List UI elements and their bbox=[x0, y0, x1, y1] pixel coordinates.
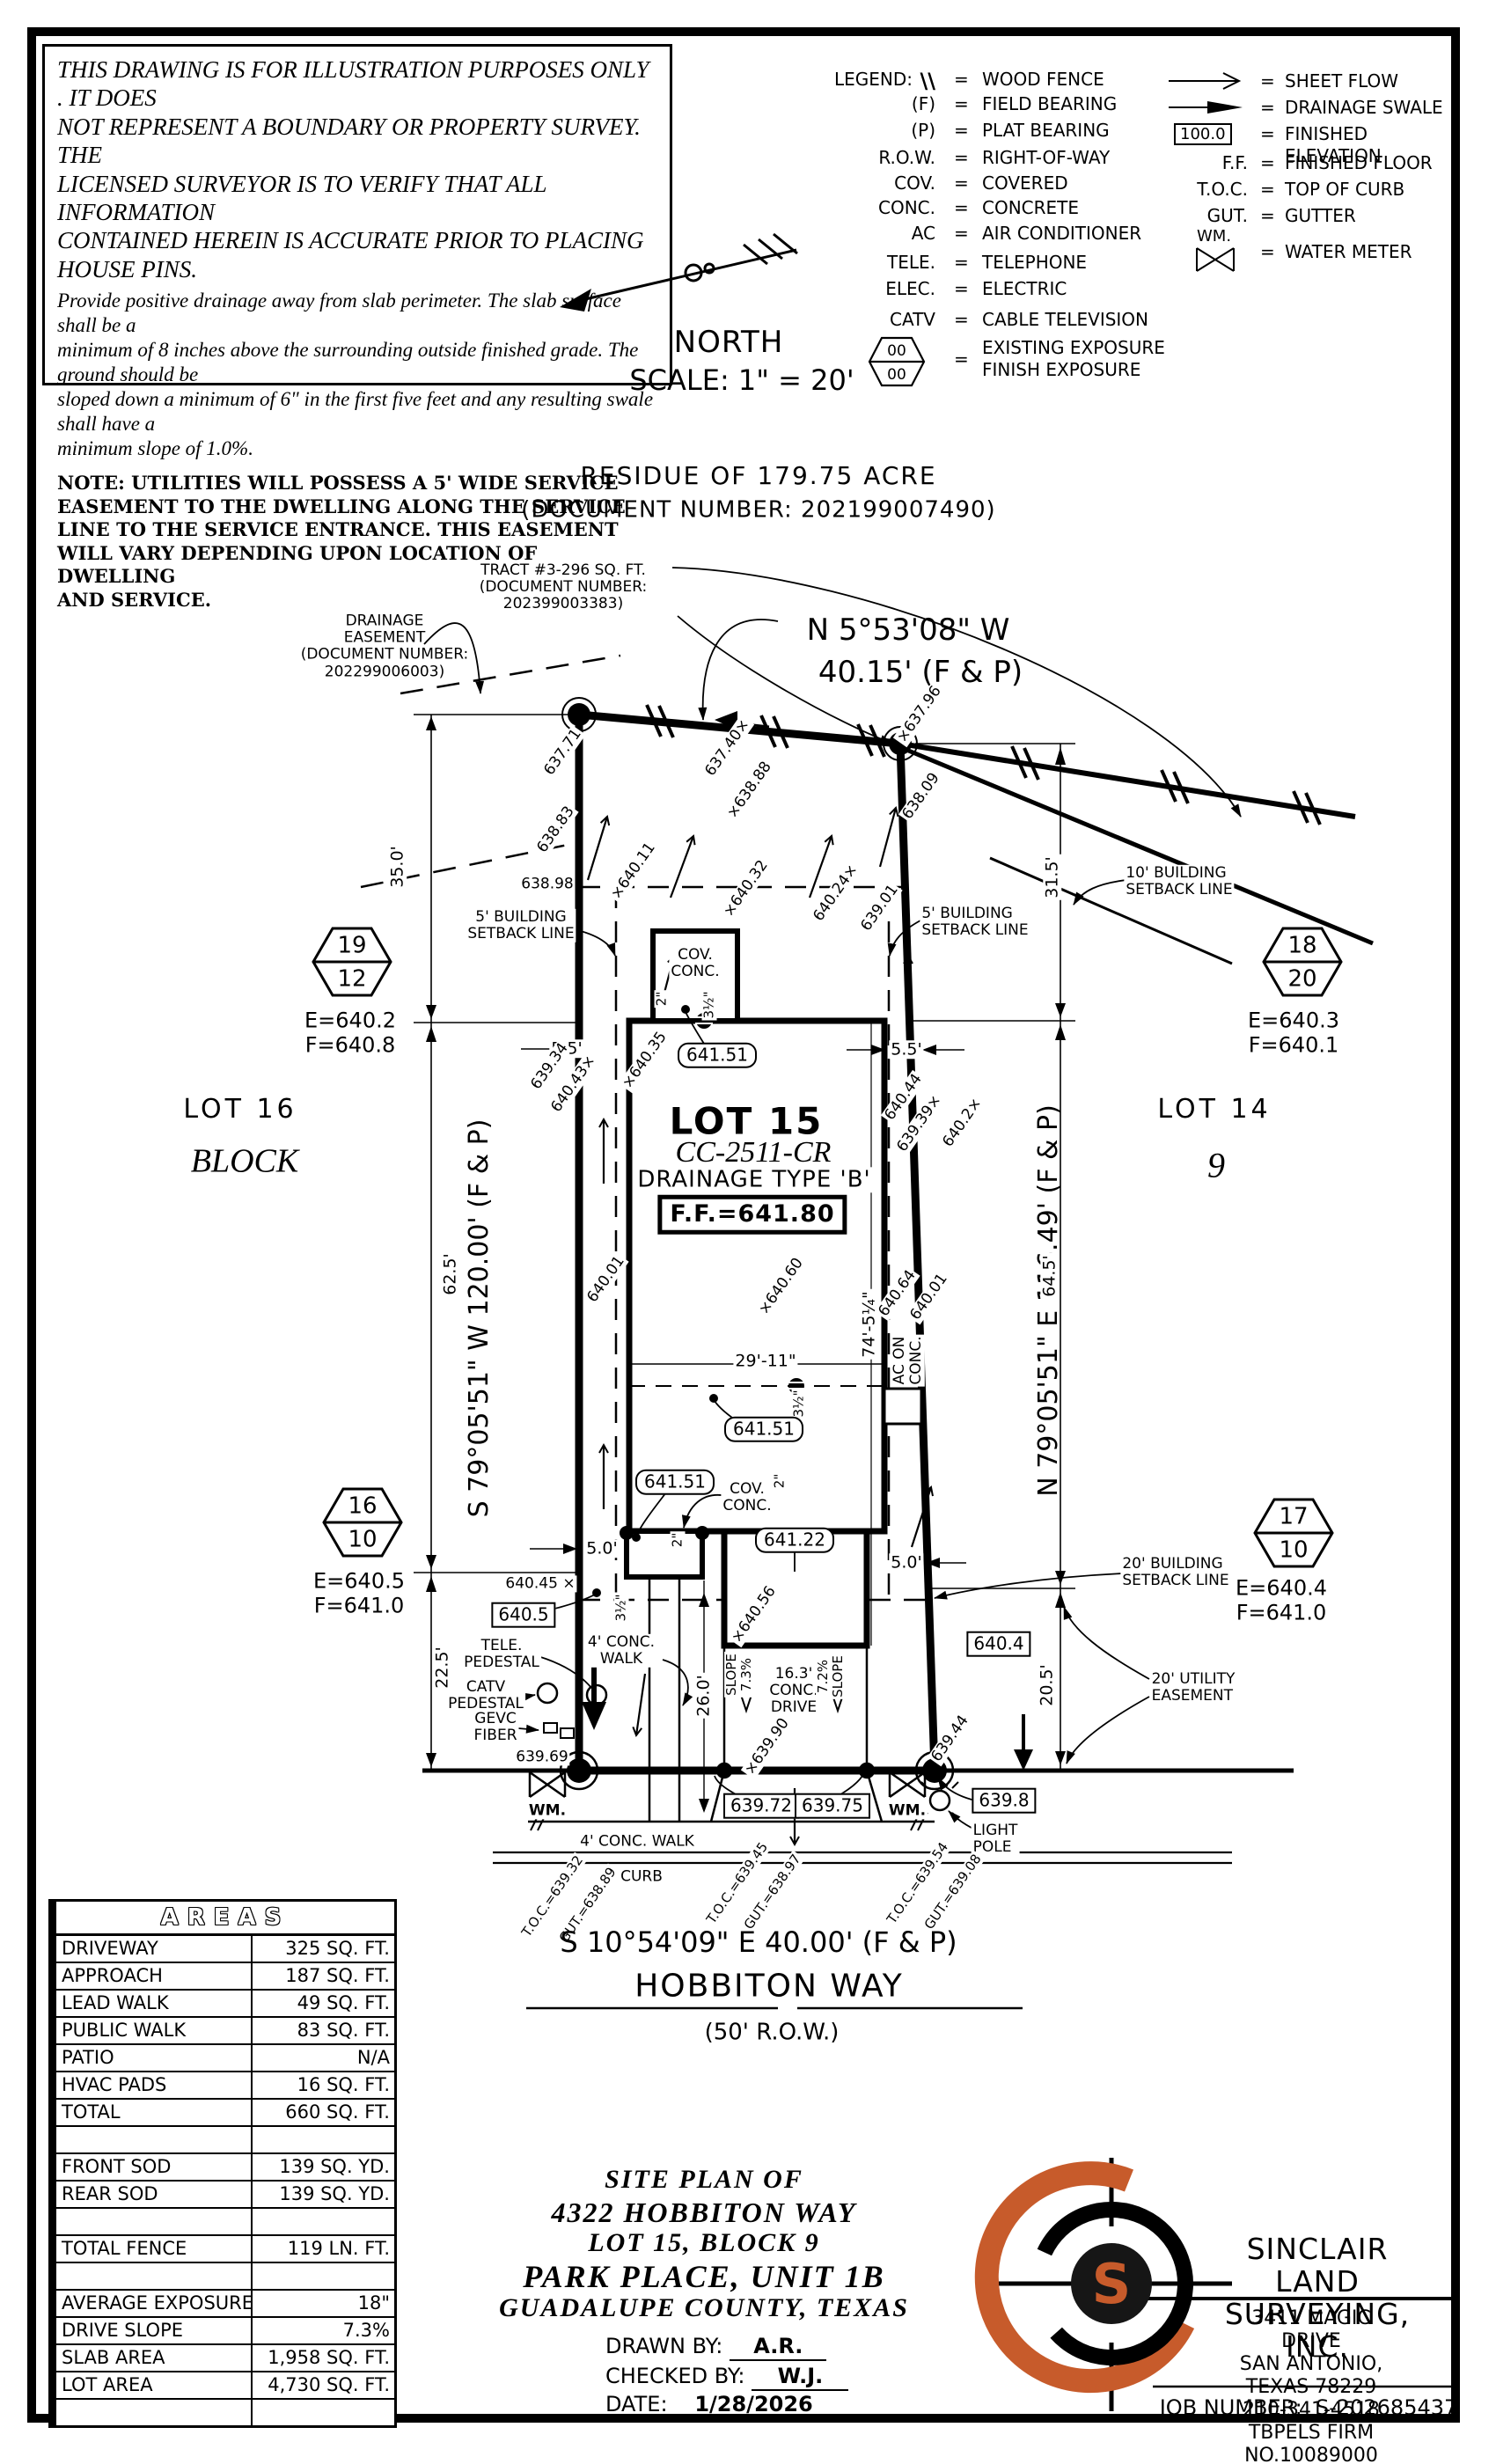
row-label: REAR SOD bbox=[56, 2182, 253, 2207]
scale-label: SCALE: 1" = 20' bbox=[627, 364, 855, 396]
row-value: N/A bbox=[253, 2045, 394, 2071]
row-value: 18" bbox=[253, 2291, 394, 2316]
equals: = bbox=[954, 252, 969, 273]
legend-row: TELE.=TELEPHONE bbox=[834, 252, 1204, 278]
row-label bbox=[56, 2209, 253, 2234]
equals: = bbox=[1260, 152, 1275, 173]
row-label: FRONT SOD bbox=[56, 2154, 253, 2180]
fiber-box-icon bbox=[544, 1723, 557, 1733]
finished-elevation-box: 639.75 bbox=[795, 1793, 870, 1819]
legend-def: TOP OF CURB bbox=[1285, 179, 1404, 201]
row-value: 4,730 SQ. FT. bbox=[253, 2372, 394, 2398]
cov-conc-patio-label: COV. CONC. bbox=[669, 947, 721, 980]
equals: = bbox=[954, 147, 969, 168]
row-label bbox=[56, 2400, 253, 2425]
legend-def: FINISHED FLOOR bbox=[1285, 152, 1433, 174]
dim-26-0: 26.0' bbox=[694, 1673, 713, 1719]
legend-row: =SHEET FLOW bbox=[1162, 70, 1470, 97]
row-label bbox=[56, 2263, 253, 2289]
finished-elevation-box: 640.5 bbox=[491, 1602, 555, 1628]
water-meter-label-right: WM. bbox=[887, 1802, 928, 1819]
checked-by-label: CHECKED BY: bbox=[605, 2364, 744, 2388]
legend-sym: WM. bbox=[1197, 227, 1231, 246]
checked-by-row: CHECKED BY:W.J. bbox=[605, 2364, 848, 2391]
dim-2in: 2" bbox=[655, 990, 670, 1008]
equals: = bbox=[954, 93, 969, 114]
exposure-bottom: 00 bbox=[887, 366, 906, 384]
table-row: TOTAL660 SQ. FT. bbox=[56, 2100, 394, 2127]
block-label: BLOCK bbox=[189, 1143, 300, 1181]
fiber-box-icon bbox=[561, 1728, 574, 1738]
bearing-west: S 79°05'51" W 120.00' (F & P) bbox=[465, 1118, 495, 1520]
table-row bbox=[56, 2127, 394, 2154]
table-row: PUBLIC WALK83 SQ. FT. bbox=[56, 2018, 394, 2045]
dim-62-5: 62.5' bbox=[441, 1251, 459, 1297]
marker-top: 19 bbox=[335, 933, 368, 958]
catv-pedestal-icon bbox=[538, 1683, 557, 1703]
utility-easement-label: 20' UTILITY EASEMENT bbox=[1150, 1671, 1237, 1705]
finished-elevation-box: 641.22 bbox=[755, 1528, 834, 1553]
row-label bbox=[56, 2127, 253, 2152]
cov-conc-stoop-label: COV. CONC. bbox=[721, 1481, 773, 1514]
drive-slope-left-label: SLOPE 7.3% bbox=[724, 1652, 754, 1698]
row-label: LEAD WALK bbox=[56, 1991, 253, 2016]
legend-def: EXISTING EXPOSURE FINISH EXPOSURE bbox=[982, 337, 1165, 381]
dim-64-5: 64.5' bbox=[1040, 1253, 1059, 1299]
drainage-swale-icon bbox=[1169, 99, 1250, 116]
water-meter-label-left: WM. bbox=[527, 1802, 568, 1819]
row-value: 7.3% bbox=[253, 2318, 394, 2343]
north-label: NORTH bbox=[672, 326, 786, 359]
equals: = bbox=[954, 223, 969, 244]
table-row: AVERAGE EXPOSURE18" bbox=[56, 2291, 394, 2318]
legend-sym: R.O.W. bbox=[878, 147, 935, 168]
row-value bbox=[253, 2263, 394, 2289]
areas-table: AREAS DRIVEWAY325 SQ. FT. APPROACH187 SQ… bbox=[48, 1899, 397, 2428]
legend-row-exposure: 00 00 = EXISTING EXPOSURE FINISH EXPOSUR… bbox=[834, 333, 1204, 394]
spot-elevation: 639.69 bbox=[514, 1749, 569, 1765]
logo-letter: S bbox=[1092, 2252, 1132, 2316]
areas-table-title: AREAS bbox=[56, 1902, 394, 1936]
conc-drive-label: 16.3' CONC. DRIVE bbox=[767, 1666, 819, 1717]
marker-existing: E=640.5 bbox=[312, 1569, 407, 1593]
legend-def: AIR CONDITIONER bbox=[982, 223, 1141, 245]
marker-bottom: 10 bbox=[346, 1527, 378, 1552]
table-row: HVAC PADS16 SQ. FT. bbox=[56, 2072, 394, 2100]
table-row: APPROACH187 SQ. FT. bbox=[56, 1963, 394, 1991]
legend-row: CONC.=CONCRETE bbox=[834, 197, 1204, 224]
table-row: SLAB AREA1,958 SQ. FT. bbox=[56, 2345, 394, 2372]
legend-title: LEGEND: bbox=[834, 69, 913, 90]
date-value: 1/28/2026 bbox=[675, 2392, 833, 2419]
legend-sym: TELE. bbox=[887, 252, 935, 273]
legend-sym: (F) bbox=[912, 93, 935, 114]
gevc-fiber-label: GEVC FIBER bbox=[472, 1711, 518, 1744]
job-number-row: JOB NUMBER: S-202685437 bbox=[1160, 2395, 1458, 2420]
bearing-north-line1: N 5°53'08" W bbox=[805, 613, 1012, 647]
row-label: TOTAL FENCE bbox=[56, 2236, 253, 2262]
legend-def: TELEPHONE bbox=[982, 252, 1087, 274]
bearing-north-line2: 40.15' (F & P) bbox=[817, 656, 1024, 689]
marker-finish: F=640.8 bbox=[304, 1033, 398, 1057]
legend-sym: T.O.C. bbox=[1197, 179, 1248, 200]
legend-def: COVERED bbox=[982, 172, 1068, 194]
marker-bottom: 20 bbox=[1286, 966, 1318, 992]
light-pole-label: LIGHT POLE bbox=[972, 1822, 1020, 1856]
equals: = bbox=[1260, 70, 1275, 92]
exposure-hex-icon: 00 00 bbox=[862, 333, 931, 391]
ac-pad bbox=[884, 1389, 921, 1424]
table-row bbox=[56, 2209, 394, 2236]
lot14-label: LOT 14 bbox=[1155, 1095, 1272, 1125]
dim-2in: 2" bbox=[773, 1472, 788, 1490]
equals: = bbox=[954, 69, 969, 90]
setback-20-label: 20' BUILDING SETBACK LINE bbox=[1120, 1556, 1230, 1589]
table-row bbox=[56, 2400, 394, 2425]
finished-elevation-icon: 100.0 bbox=[1174, 123, 1232, 145]
row-label: APPROACH bbox=[56, 1963, 253, 1989]
row-value: 139 SQ. YD. bbox=[253, 2182, 394, 2207]
tract-callout: TRACT #3-296 SQ. FT. (DOCUMENT NUMBER: 2… bbox=[478, 562, 649, 613]
table-row: DRIVEWAY325 SQ. FT. bbox=[56, 1936, 394, 1963]
row-label: SLAB AREA bbox=[56, 2345, 253, 2371]
dim-5-0-left: 5.0' bbox=[584, 1539, 619, 1558]
water-meter-icon bbox=[890, 1772, 925, 1797]
legend-sym: (P) bbox=[911, 120, 935, 141]
finished-elevation-box: 639.72 bbox=[723, 1793, 799, 1819]
finished-elevation-box: 640.4 bbox=[966, 1632, 1030, 1657]
row-value bbox=[253, 2400, 394, 2425]
row-label: PATIO bbox=[56, 2045, 253, 2071]
residue-doc-number: (DOCUMENT NUMBER: 202199007490) bbox=[519, 497, 997, 523]
table-row bbox=[56, 2263, 394, 2291]
row-value: 119 LN. FT. bbox=[253, 2236, 394, 2262]
firm-address: 3411 MAGIC DRIVE SAN ANTONIO, TEXAS 7822… bbox=[1219, 2307, 1404, 2464]
spot-elevation: 640.45 × bbox=[503, 1575, 576, 1592]
job-number-value: S-202685437 bbox=[1316, 2395, 1457, 2420]
catv-pedestal-label: CATV PEDESTAL bbox=[446, 1679, 525, 1712]
table-row: FRONT SOD139 SQ. YD. bbox=[56, 2154, 394, 2182]
row-value: 325 SQ. FT. bbox=[253, 1936, 394, 1962]
equals: = bbox=[954, 348, 969, 370]
equals: = bbox=[1260, 97, 1275, 118]
title-line4: PARK PLACE, UNIT 1B bbox=[523, 2258, 884, 2295]
setback-10-label: 10' BUILDING SETBACK LINE bbox=[1124, 865, 1234, 898]
legend-row: CATV=CABLE TELEVISION bbox=[834, 309, 1204, 335]
site-plan-sheet: S THIS DRAWING IS FOR ILLUSTRATION PURPO… bbox=[0, 0, 1496, 2464]
drawn-by-label: DRAWN BY: bbox=[605, 2334, 722, 2358]
table-row: REAR SOD139 SQ. YD. bbox=[56, 2182, 394, 2209]
sheet-flow-icon bbox=[1169, 72, 1250, 90]
legend-sym: ELEC. bbox=[885, 278, 935, 299]
disclaimer-box: THIS DRAWING IS FOR ILLUSTRATION PURPOSE… bbox=[42, 44, 672, 385]
legend-row: (F)=FIELD BEARING bbox=[834, 93, 1204, 120]
dim-74: 74'-5¼" bbox=[860, 1289, 878, 1360]
legend-def: ELECTRIC bbox=[982, 278, 1067, 300]
title-line3: LOT 15, BLOCK 9 bbox=[588, 2228, 819, 2258]
lot16-label: LOT 16 bbox=[181, 1095, 298, 1125]
dim-29-11: 29'-11" bbox=[733, 1352, 797, 1370]
legend-sym: CATV bbox=[890, 309, 935, 330]
marker-bottom: 12 bbox=[335, 966, 368, 992]
setback-5-left-label: 5' BUILDING SETBACK LINE bbox=[466, 909, 576, 942]
dim-3-5in: 3½" bbox=[614, 1593, 629, 1624]
wood-fence-icon: \\ bbox=[920, 69, 935, 93]
dim-31-5: 31.5' bbox=[1043, 854, 1061, 900]
firm-logo: S bbox=[986, 2158, 1232, 2411]
legend-row: =DRAINAGE SWALE bbox=[1162, 97, 1470, 123]
legend-def: WOOD FENCE bbox=[982, 69, 1104, 91]
legend-def: WATER METER bbox=[1285, 241, 1412, 263]
finished-elevation-box: 641.51 bbox=[724, 1417, 803, 1442]
equals: = bbox=[954, 120, 969, 141]
tele-pedestal-label: TELE. PEDESTAL bbox=[462, 1638, 541, 1671]
marker-finish: F=641.0 bbox=[312, 1594, 407, 1617]
curb-label: CURB bbox=[619, 1868, 664, 1885]
table-row: LOT AREA4,730 SQ. FT. bbox=[56, 2372, 394, 2400]
exposure-top: 00 bbox=[887, 342, 906, 360]
table-row: DRIVE SLOPE7.3% bbox=[56, 2318, 394, 2345]
legend-sym: AC bbox=[912, 223, 935, 244]
residue-title: RESIDUE OF 179.75 ACRE bbox=[578, 462, 938, 490]
row-label: PUBLIC WALK bbox=[56, 2018, 253, 2043]
marker-bottom: 10 bbox=[1277, 1537, 1309, 1563]
row-value: 660 SQ. FT. bbox=[253, 2100, 394, 2125]
marker-existing: E=640.3 bbox=[1246, 1008, 1341, 1032]
lot15-plan-code: CC-2511-CR bbox=[674, 1136, 833, 1170]
job-number-label: JOB NUMBER: bbox=[1160, 2395, 1302, 2420]
equals: = bbox=[954, 278, 969, 299]
dim-3-5in: 3½" bbox=[792, 1389, 807, 1419]
legend-row: AC=AIR CONDITIONER bbox=[834, 223, 1204, 249]
title-line5: GUADALUPE COUNTY, TEXAS bbox=[499, 2293, 909, 2323]
dim-2in: 2" bbox=[671, 1531, 686, 1549]
legend-def: CONCRETE bbox=[982, 197, 1079, 219]
drainage-easement-callout: DRAINAGE EASEMENT (DOCUMENT NUMBER: 2022… bbox=[299, 613, 471, 681]
marker-existing: E=640.4 bbox=[1234, 1576, 1329, 1600]
equals: = bbox=[1260, 205, 1275, 226]
public-walk-label: 4' CONC. WALK bbox=[578, 1833, 696, 1850]
dim-5-5-right: 5.5' bbox=[889, 1040, 923, 1059]
row-value bbox=[253, 2209, 394, 2234]
marker-existing: E=640.2 bbox=[303, 1008, 398, 1032]
legend-def: PLAT BEARING bbox=[982, 120, 1110, 142]
dim-20-5: 20.5' bbox=[1038, 1662, 1056, 1708]
legend-row: F.F.=FINISHED FLOOR bbox=[1162, 152, 1470, 179]
legend-row: LEGEND: \\ = WOOD FENCE bbox=[834, 69, 1204, 95]
dim-35: 35.0' bbox=[388, 844, 407, 890]
marker-finish: F=641.0 bbox=[1235, 1601, 1329, 1624]
row-value: 16 SQ. FT. bbox=[253, 2072, 394, 2098]
row-label: DRIVE SLOPE bbox=[56, 2318, 253, 2343]
date-row: DATE:1/28/2026 bbox=[605, 2392, 833, 2419]
ac-on-conc-label: AC ON CONC. bbox=[891, 1334, 925, 1386]
water-meter-icon bbox=[530, 1772, 565, 1797]
row-value bbox=[253, 2127, 394, 2152]
block-number-label: 9 bbox=[1206, 1145, 1227, 1184]
table-row: LEAD WALK49 SQ. FT. bbox=[56, 1991, 394, 2018]
street-row: (50' R.O.W.) bbox=[703, 2020, 841, 2045]
equals: = bbox=[954, 197, 969, 218]
legend-row: R.O.W.=RIGHT-OF-WAY bbox=[834, 147, 1204, 173]
legend-def: CABLE TELEVISION bbox=[982, 309, 1148, 331]
row-label: AVERAGE EXPOSURE bbox=[56, 2291, 253, 2316]
equals: = bbox=[954, 309, 969, 330]
legend-def: FIELD BEARING bbox=[982, 93, 1117, 115]
title-line2: 4322 HOBBITON WAY bbox=[552, 2196, 857, 2229]
equals: = bbox=[954, 172, 969, 194]
table-row: TOTAL FENCE119 LN. FT. bbox=[56, 2236, 394, 2263]
finished-floor-value: F.F.=641.80 bbox=[657, 1195, 847, 1235]
row-label: TOTAL bbox=[56, 2100, 253, 2125]
spot-elevation: 638.98 bbox=[519, 876, 575, 892]
row-label: DRIVEWAY bbox=[56, 1936, 253, 1962]
lead-walk-label: 4' CONC. WALK bbox=[586, 1634, 656, 1668]
row-value: 1,958 SQ. FT. bbox=[253, 2345, 394, 2371]
dim-5-0-right: 5.0' bbox=[889, 1553, 923, 1572]
legend-row: COV.=COVERED bbox=[834, 172, 1204, 199]
light-pole-icon bbox=[930, 1791, 950, 1810]
finished-elevation-box: 641.51 bbox=[635, 1470, 715, 1495]
row-value: 139 SQ. YD. bbox=[253, 2154, 394, 2180]
row-value: 83 SQ. FT. bbox=[253, 2018, 394, 2043]
date-label: DATE: bbox=[605, 2392, 668, 2416]
bearing-east: N 79°05'51" E 116.49' (F & P) bbox=[1034, 1103, 1064, 1499]
marker-top: 18 bbox=[1286, 933, 1318, 958]
marker-top: 16 bbox=[346, 1493, 378, 1519]
row-value: 49 SQ. FT. bbox=[253, 1991, 394, 2016]
marker-top: 17 bbox=[1277, 1504, 1309, 1529]
legend-row: T.O.C.=TOP OF CURB bbox=[1162, 179, 1470, 205]
street-bearing: S 10°54'09" E 40.00' (F & P) bbox=[558, 1926, 958, 1958]
equals: = bbox=[1260, 123, 1275, 144]
checked-by-value: W.J. bbox=[752, 2364, 848, 2391]
dim-22-5: 22.5' bbox=[433, 1645, 451, 1690]
table-row: PATION/A bbox=[56, 2045, 394, 2072]
equals: = bbox=[1260, 179, 1275, 200]
lot15-drainage-type: DRAINAGE TYPE 'B' bbox=[635, 1167, 872, 1192]
row-label: HVAC PADS bbox=[56, 2072, 253, 2098]
legend-def: GUTTER bbox=[1285, 205, 1356, 227]
legend-sym: CONC. bbox=[878, 197, 935, 218]
finished-elevation-box: 641.51 bbox=[678, 1043, 757, 1068]
drawn-by-row: DRAWN BY:A.R. bbox=[605, 2334, 826, 2361]
drive-slope-right-label: 7.2% SLOPE bbox=[816, 1654, 846, 1699]
legend-row: 100.0 =FINISHED ELEVATION bbox=[1162, 123, 1470, 150]
marker-finish: F=640.1 bbox=[1247, 1033, 1341, 1057]
legend-def: RIGHT-OF-WAY bbox=[982, 147, 1110, 169]
title-line1: SITE PLAN OF bbox=[605, 2165, 803, 2195]
row-value: 187 SQ. FT. bbox=[253, 1963, 394, 1989]
legend-sym: COV. bbox=[894, 172, 935, 194]
legend-row: (P)=PLAT BEARING bbox=[834, 120, 1204, 146]
legend-def: SHEET FLOW bbox=[1285, 70, 1398, 92]
legend-def: DRAINAGE SWALE bbox=[1285, 97, 1443, 119]
legend-row: WM. =WATER METER bbox=[1162, 227, 1470, 282]
legend-row: ELEC.=ELECTRIC bbox=[834, 278, 1204, 304]
disclaimer-text: THIS DRAWING IS FOR ILLUSTRATION PURPOSE… bbox=[57, 55, 657, 283]
equals: = bbox=[1260, 241, 1275, 262]
legend-sym: F.F. bbox=[1222, 152, 1248, 173]
drainage-note: Provide positive drainage away from slab… bbox=[57, 289, 657, 461]
legend-sym: GUT. bbox=[1207, 205, 1248, 226]
water-meter-icon bbox=[1193, 245, 1237, 275]
street-name: HOBBITON WAY bbox=[633, 1969, 906, 2006]
dim-3-5in: 3½" bbox=[702, 990, 717, 1021]
finished-elevation-box: 639.8 bbox=[972, 1788, 1036, 1814]
row-label: LOT AREA bbox=[56, 2372, 253, 2398]
setback-5-right-label: 5' BUILDING SETBACK LINE bbox=[920, 906, 1030, 939]
drawn-by-value: A.R. bbox=[730, 2334, 826, 2361]
